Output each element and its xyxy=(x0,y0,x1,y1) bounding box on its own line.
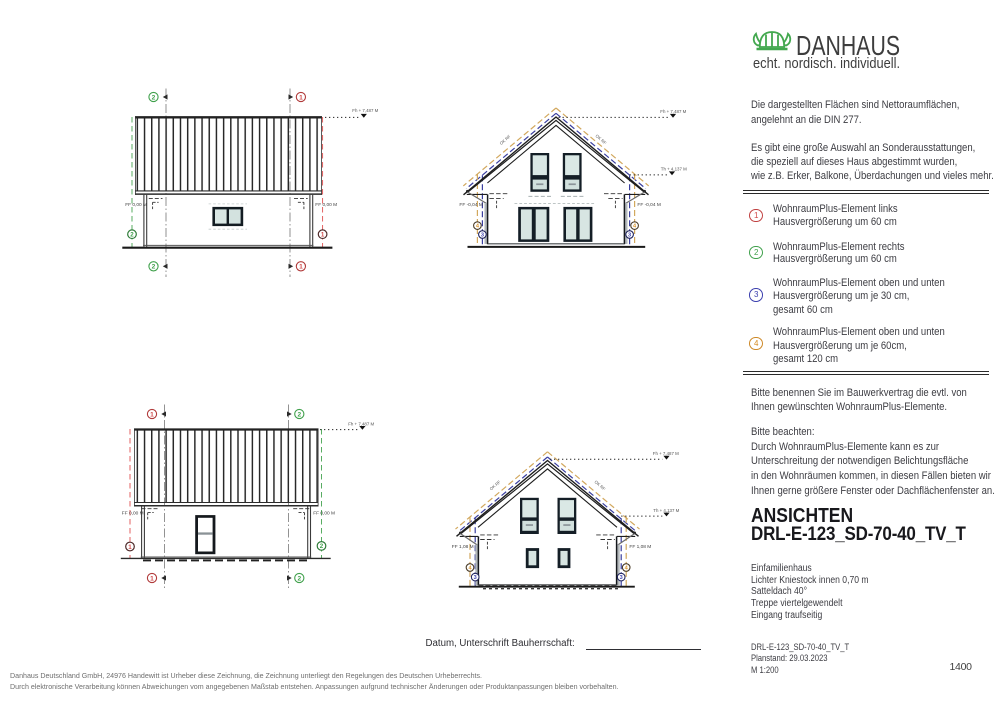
svg-text:FF 0,00 M: FF 0,00 M xyxy=(122,511,144,517)
svg-text:1: 1 xyxy=(321,232,325,239)
svg-text:Th + 4,137 M: Th + 4,137 M xyxy=(661,167,687,172)
svg-text:Fh + 7,487 M: Fh + 7,487 M xyxy=(348,421,374,426)
svg-text:1: 1 xyxy=(299,94,303,101)
svg-text:2: 2 xyxy=(320,543,324,550)
svg-text:3: 3 xyxy=(481,233,484,239)
svg-text:Th + 4,137 M: Th + 4,137 M xyxy=(653,508,679,513)
svg-text:Fh + 7,487 M: Fh + 7,487 M xyxy=(352,108,378,113)
svg-text:FF -0,04 M: FF -0,04 M xyxy=(637,202,660,208)
svg-text:OK RF: OK RF xyxy=(593,479,606,491)
svg-text:FF 1,08 M: FF 1,08 M xyxy=(452,544,474,550)
svg-text:2: 2 xyxy=(297,411,301,418)
svg-text:Fh + 7,487 M: Fh + 7,487 M xyxy=(660,109,686,114)
svg-text:1: 1 xyxy=(128,544,132,551)
svg-text:FF -0,04 M: FF -0,04 M xyxy=(459,202,482,208)
svg-text:2: 2 xyxy=(152,264,156,271)
svg-text:1: 1 xyxy=(150,575,154,582)
svg-text:1: 1 xyxy=(150,411,154,418)
svg-text:OK RF: OK RF xyxy=(594,133,607,145)
svg-text:OK RF: OK RF xyxy=(489,479,502,491)
svg-text:FF 0,00 M: FF 0,00 M xyxy=(125,202,147,208)
svg-text:FF 0,00 M: FF 0,00 M xyxy=(315,202,337,208)
svg-text:3: 3 xyxy=(620,575,623,581)
svg-text:FF 0,00 M: FF 0,00 M xyxy=(313,511,335,517)
svg-text:3: 3 xyxy=(474,575,477,581)
svg-text:Fh + 7,487 M: Fh + 7,487 M xyxy=(653,451,679,456)
svg-text:2: 2 xyxy=(152,94,156,101)
svg-text:3: 3 xyxy=(628,233,631,239)
svg-text:OK RF: OK RF xyxy=(499,134,512,146)
svg-text:2: 2 xyxy=(297,575,301,582)
svg-text:FF 1,08 M: FF 1,08 M xyxy=(629,544,651,550)
svg-text:2: 2 xyxy=(130,232,134,239)
svg-text:1: 1 xyxy=(299,264,303,271)
